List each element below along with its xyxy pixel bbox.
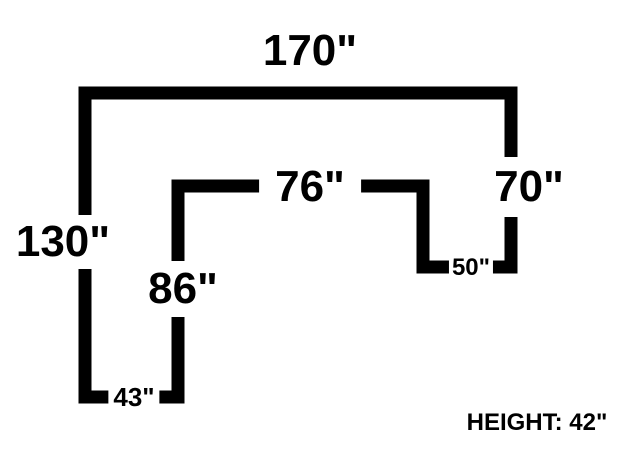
- dimension-label-left-height: 130": [14, 215, 112, 269]
- dimension-label-inner-width: 76": [259, 163, 361, 211]
- dimension-label-right-height: 70": [490, 157, 568, 217]
- height-note-label: HEIGHT: 42": [467, 411, 608, 435]
- dimension-label-bottom-left-width: 43": [108, 382, 159, 412]
- dimension-diagram: 170" 70" 130" 76" 86" 43" 50" HEIGHT: 42…: [0, 0, 636, 457]
- dimension-label-bottom-right-width: 50": [449, 254, 493, 282]
- dimension-label-top-width: 170": [261, 29, 359, 73]
- dimension-label-inner-height: 86": [146, 261, 220, 317]
- counter-outline-path: [85, 93, 511, 397]
